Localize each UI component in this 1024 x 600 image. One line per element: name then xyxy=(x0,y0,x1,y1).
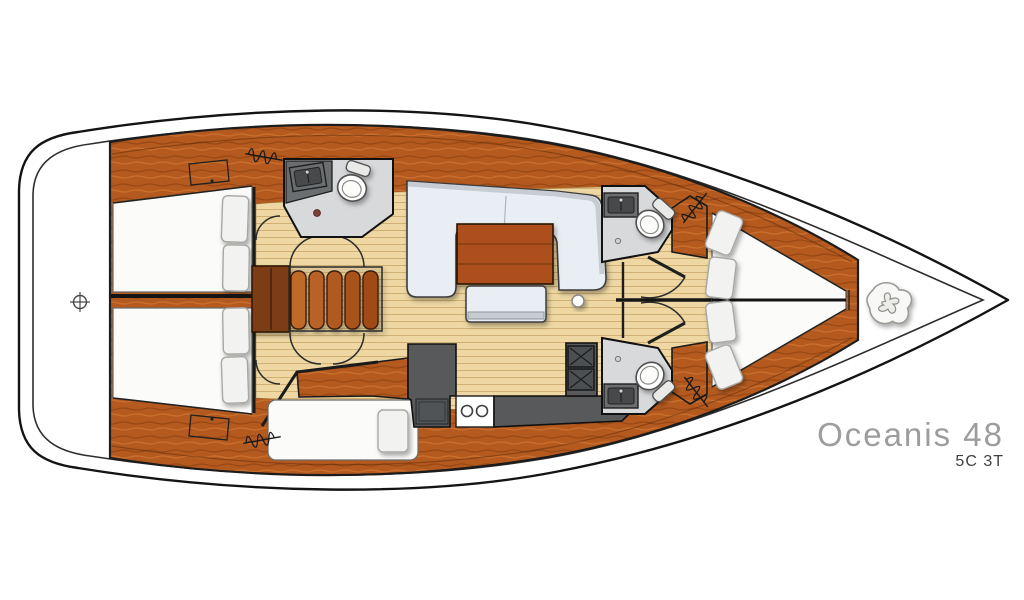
locker-handle xyxy=(210,417,213,420)
shower-drain xyxy=(314,210,321,217)
bunk-cabin xyxy=(268,400,418,460)
galley-sink-bowl xyxy=(477,406,488,417)
boat-floorplan-page: Oceanis 48 5C 3T xyxy=(0,0,1024,600)
pillow xyxy=(223,308,250,354)
fridge xyxy=(416,399,448,424)
branding-block: Oceanis 48 5C 3T xyxy=(817,418,1004,470)
galley-sink-bowl xyxy=(462,406,473,417)
mast-foot-icon xyxy=(572,295,584,307)
pillow xyxy=(223,245,250,291)
bench-edge xyxy=(468,312,544,319)
pillow xyxy=(378,410,408,452)
model-name-label: Oceanis 48 xyxy=(817,418,1004,453)
aft-head-bathroom xyxy=(284,159,393,237)
pillow xyxy=(221,357,249,404)
step xyxy=(363,271,378,329)
bow-wood-wedge-bottom xyxy=(672,342,707,404)
locker-handle xyxy=(210,179,213,182)
step xyxy=(309,271,324,329)
step xyxy=(327,271,342,329)
shower-drain xyxy=(615,238,620,243)
step xyxy=(345,271,360,329)
salon-table xyxy=(457,224,553,284)
layout-code-label: 5C 3T xyxy=(817,454,1004,471)
floor-plan-svg xyxy=(0,0,1024,600)
step xyxy=(291,271,306,329)
pillow xyxy=(221,196,249,243)
shower-drain xyxy=(615,356,620,361)
